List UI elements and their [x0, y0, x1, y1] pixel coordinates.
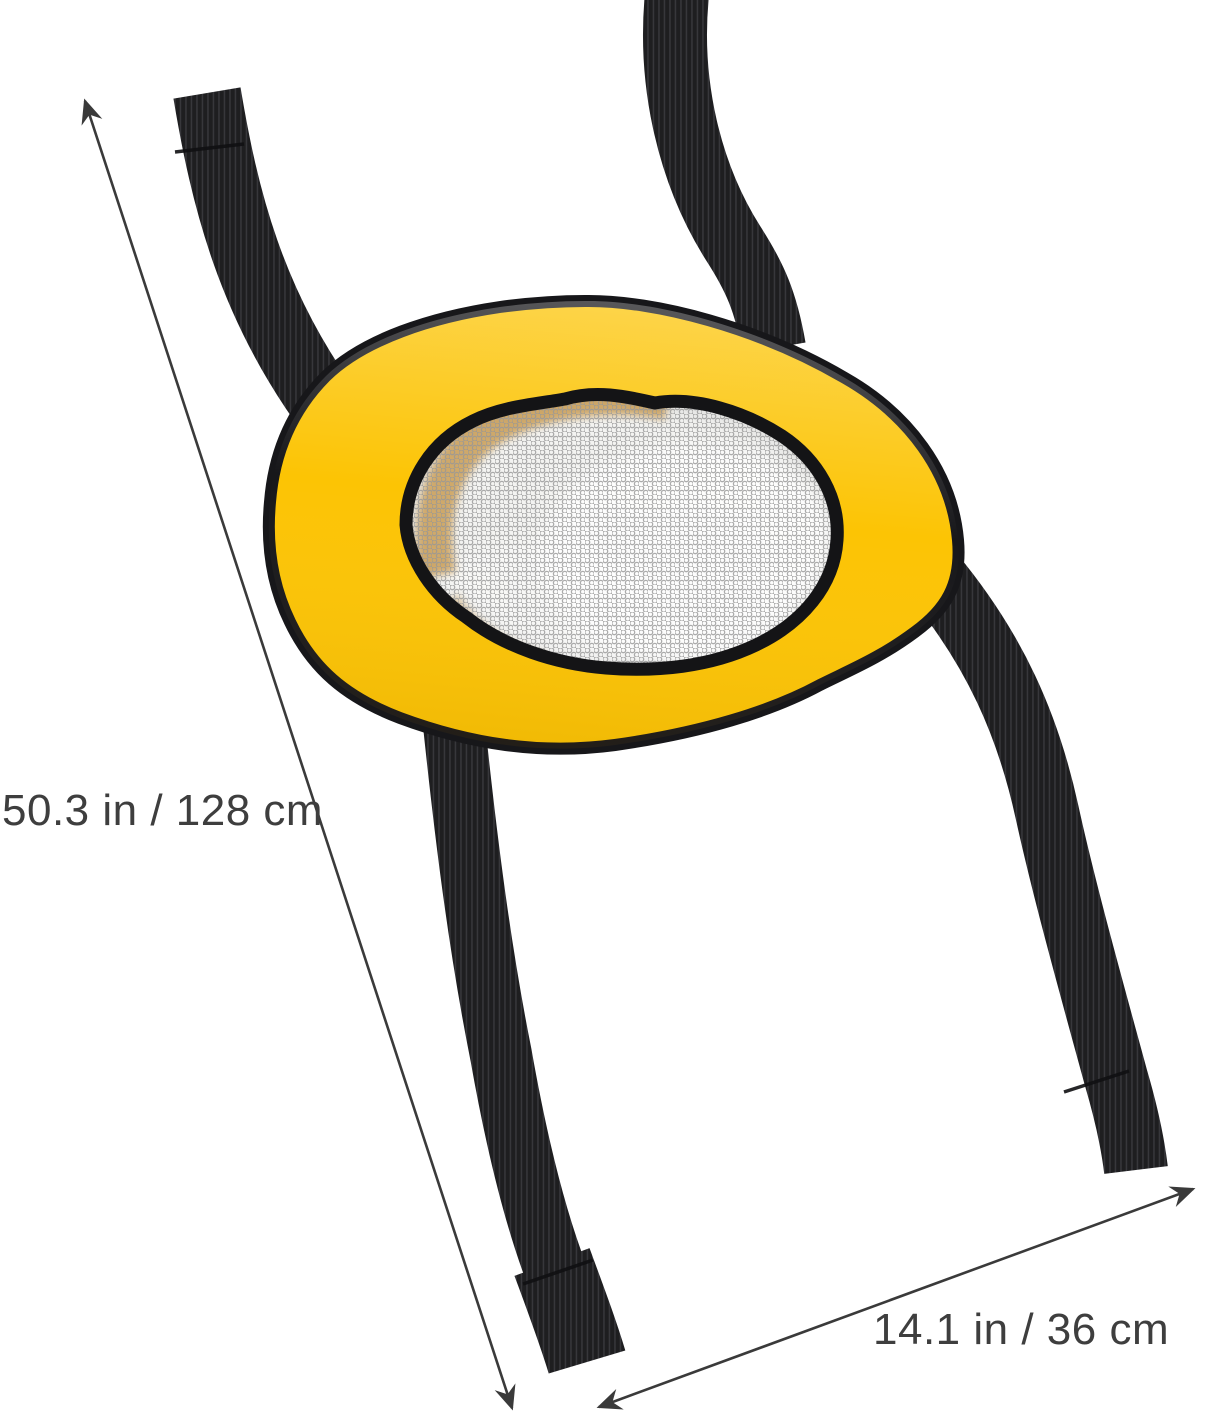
- bottom-left-strap-cuff: [552, 1262, 587, 1362]
- bottom-left-strap: [453, 715, 557, 1275]
- top-left-strap: [207, 93, 332, 415]
- right-strap: [933, 575, 1136, 1170]
- width-dimension-label: 14.1 in / 36 cm: [873, 1308, 1169, 1352]
- product-image: 50.3 in / 128 cm 14.1 in / 36 cm: [0, 0, 1206, 1419]
- product-illustration: [0, 0, 1206, 1419]
- length-dimension-label: 50.3 in / 128 cm: [2, 789, 323, 833]
- width-dimension-arrow: [599, 1189, 1193, 1407]
- top-right-strap: [675, 0, 774, 348]
